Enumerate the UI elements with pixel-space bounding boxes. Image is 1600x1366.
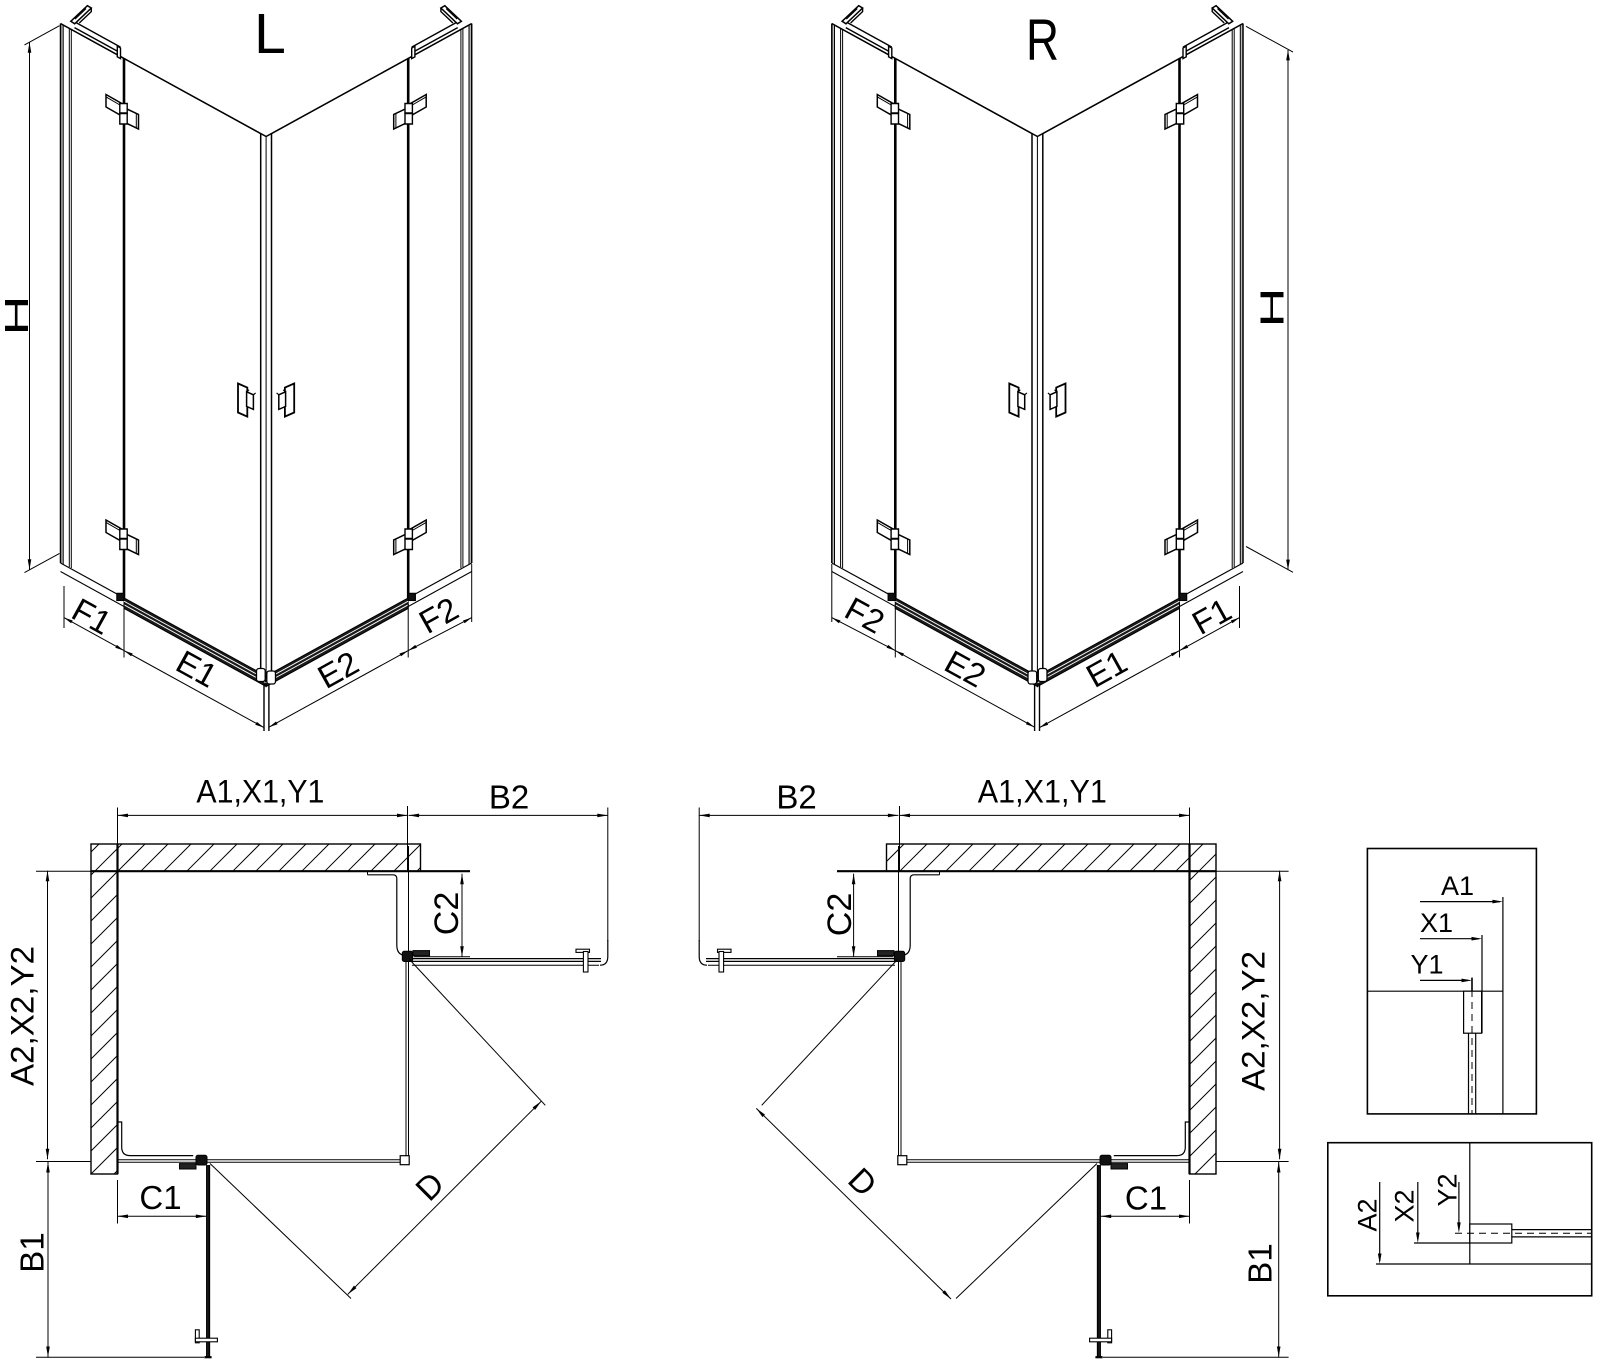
svg-text:D: D bbox=[408, 1165, 451, 1208]
svg-text:R: R bbox=[1026, 8, 1059, 73]
svg-text:F2: F2 bbox=[413, 590, 465, 641]
svg-text:Y2: Y2 bbox=[1433, 1173, 1463, 1206]
svg-text:F2: F2 bbox=[839, 590, 891, 641]
svg-text:B2: B2 bbox=[489, 779, 529, 816]
svg-text:A1,X1,Y1: A1,X1,Y1 bbox=[978, 774, 1107, 810]
svg-text:A2,X2,Y2: A2,X2,Y2 bbox=[1235, 951, 1271, 1091]
svg-text:C2: C2 bbox=[428, 892, 466, 935]
svg-text:D: D bbox=[841, 1160, 884, 1203]
svg-text:X2: X2 bbox=[1390, 1189, 1420, 1222]
svg-text:H: H bbox=[1254, 288, 1291, 328]
svg-text:C1: C1 bbox=[1125, 1180, 1167, 1217]
svg-text:A1,X1,Y1: A1,X1,Y1 bbox=[196, 773, 324, 809]
svg-text:A1: A1 bbox=[1441, 871, 1474, 901]
svg-text:C1: C1 bbox=[139, 1179, 181, 1216]
svg-text:H: H bbox=[0, 296, 35, 336]
svg-text:B1: B1 bbox=[14, 1232, 51, 1272]
svg-text:Y1: Y1 bbox=[1411, 950, 1444, 980]
svg-text:B1: B1 bbox=[1242, 1243, 1279, 1283]
svg-text:C2: C2 bbox=[821, 893, 859, 936]
svg-text:A2: A2 bbox=[1353, 1198, 1383, 1231]
svg-text:X1: X1 bbox=[1420, 908, 1453, 938]
svg-text:L: L bbox=[254, 2, 286, 66]
svg-text:A2,X2,Y2: A2,X2,Y2 bbox=[5, 946, 41, 1086]
svg-text:B2: B2 bbox=[776, 779, 816, 816]
